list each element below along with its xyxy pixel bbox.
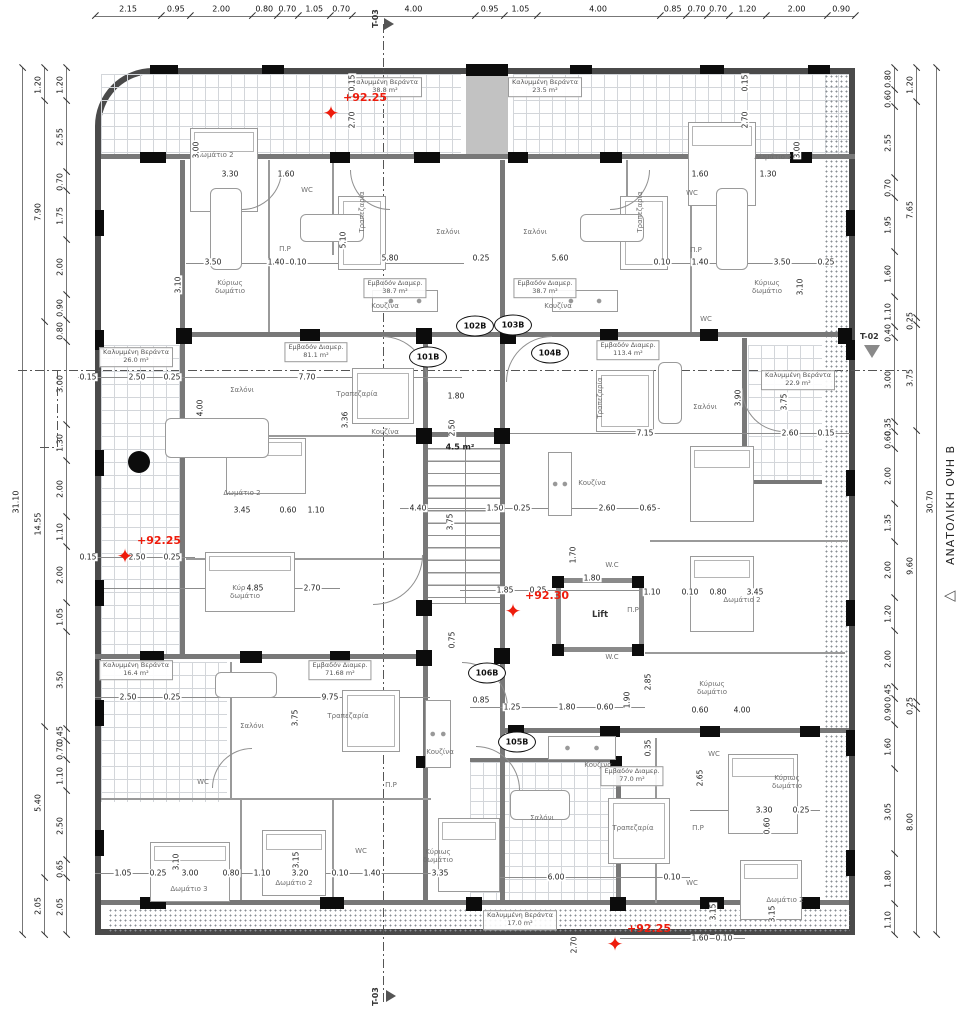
room-label: Κουζίνα: [426, 748, 454, 756]
dim-chain-right-total: 30.70: [926, 68, 940, 935]
column-block: [414, 152, 440, 163]
dimension-label: 3.10: [174, 276, 182, 295]
bed-pillow: [266, 834, 322, 850]
room-label: Π.Ρ: [690, 246, 702, 254]
dimension-label: 4.85: [246, 584, 265, 592]
dim-chain-value: 2.05: [34, 898, 43, 916]
dim-chain-value: 0.70: [332, 5, 350, 14]
veranda-tile-area: [101, 345, 181, 657]
column-block: [570, 65, 592, 74]
dim-chain-value: 0.70: [688, 5, 706, 14]
dimension-label: 2.70: [348, 111, 356, 130]
column-block: [846, 730, 855, 756]
dim-chain-value: 0.90: [56, 299, 65, 317]
column-block: [466, 64, 508, 76]
column-block: [846, 470, 855, 496]
dimension-label: 0.15: [79, 373, 98, 381]
dimension-label: 5.60: [551, 254, 570, 262]
dim-chain-value: 0.95: [167, 5, 185, 14]
wall-segment: [423, 338, 428, 905]
room-label: Δωμάτιο 3: [170, 885, 207, 893]
room-label: Π.Ρ: [279, 245, 291, 253]
room-label: Σαλόνι: [436, 228, 460, 236]
dim-chain-value: 2.15: [119, 5, 137, 14]
area-label: Καλυμμένη Βεράντα17.0 m²: [483, 910, 557, 930]
dimension-label: 1.40: [267, 258, 286, 266]
room-label: Σαλόνι: [530, 814, 554, 822]
bed-pillow: [154, 846, 226, 861]
column-block: [95, 580, 104, 606]
dimension-label: 0.80: [709, 588, 728, 596]
dimension-label: 6.00: [547, 873, 566, 881]
dim-chain-value: 2.00: [884, 650, 893, 668]
dim-chain-value: 1.60: [884, 738, 893, 756]
bed-pillow: [694, 560, 750, 578]
bed-pillow: [194, 132, 254, 152]
room-label: Δωμάτιο 2: [275, 879, 312, 887]
dim-chain-value: 4.00: [405, 5, 423, 14]
column-block: [600, 152, 622, 163]
wall-segment: [505, 728, 849, 733]
dim-tick: [852, 12, 859, 19]
dimension-label: 3.45: [233, 506, 252, 514]
unit-tag: 101B: [409, 347, 447, 368]
dimension-label: 0.10: [331, 869, 350, 877]
section-marker-t03-bottom: T-03: [371, 987, 380, 1006]
dimension-label: 0.25: [792, 806, 811, 814]
dim-chain-value: 3.05: [884, 803, 893, 821]
wall-segment: [500, 160, 505, 905]
area-label-value: 23.5 m²: [512, 87, 578, 95]
dimension-label: 3.30: [221, 170, 240, 178]
column-block: [700, 329, 718, 341]
area-label-value: 113.4 m²: [600, 350, 655, 358]
dimension-label: 2.70: [303, 584, 322, 592]
column-block: [700, 726, 720, 737]
elevation-star-icon: ✦: [117, 546, 134, 566]
dimension-label: 3.75: [780, 393, 788, 412]
area-label: Καλυμμένη Βεράντα23.5 m²: [508, 77, 582, 97]
dimension-label: 3.20: [291, 869, 310, 877]
area-label: Εμβαδόν Διαμερ.38.7 m²: [513, 278, 576, 298]
dim-chain-value: 0.70: [709, 5, 727, 14]
dimension-label: 0.15: [741, 74, 749, 93]
dimension-label: 0.10: [681, 588, 700, 596]
dim-chain-value: 0.45: [884, 684, 893, 702]
sofa-icon: [300, 214, 364, 242]
column-block: [320, 897, 344, 909]
column-block: [846, 210, 855, 236]
elevation-label: +92.25: [137, 534, 181, 547]
dimension-label: 0.10: [289, 258, 308, 266]
dim-chain-value: 0.85: [664, 5, 682, 14]
hatch-band: [108, 908, 850, 932]
unit-tag: 106B: [468, 663, 506, 684]
dim-chain-line: [22, 68, 23, 935]
dim-chain-value: 2.55: [56, 128, 65, 146]
bed-pillow: [744, 864, 798, 879]
room-label: Τραπεζαρία: [327, 712, 368, 720]
column-block: [846, 340, 855, 360]
dim-chain-right-inner: 0.800.602.550.701.951.601.100.403.000.35…: [884, 68, 898, 935]
column-block: [300, 329, 320, 341]
dimension-label: 0.15: [79, 553, 98, 561]
dimension-label: 3.15: [709, 903, 717, 922]
room-label: Π.Ρ: [385, 781, 397, 789]
dimension-label: 1.10: [643, 588, 662, 596]
room-label: Σαλόνι: [230, 386, 254, 394]
dimension-label: 3.75: [291, 709, 299, 728]
dim-chain-value: 1.20: [34, 76, 43, 94]
dim-chain-value: 0.90: [832, 5, 850, 14]
dim-chain-value: 7.65: [906, 201, 915, 219]
area-label: Καλυμμένη Βεράντα22.9 m²: [761, 370, 835, 390]
elevation-label: +92.30: [525, 589, 569, 602]
dim-chain-value: 0.70: [278, 5, 296, 14]
dim-chain-value: 2.00: [884, 468, 893, 486]
dimension-label: 2.50: [448, 419, 456, 438]
column-block: [95, 450, 104, 476]
dimension-label: 2.50: [128, 373, 147, 381]
room-label: WC: [355, 847, 367, 855]
dimension-label: 0.60: [763, 817, 771, 836]
dimension-label: 0.60: [279, 506, 298, 514]
dim-chain-left-total: 31.10: [12, 68, 26, 935]
bed-pillow: [694, 450, 750, 468]
dimension-label: 1.05: [114, 869, 133, 877]
column-block: [95, 210, 104, 236]
room-label: Δωμάτιο 2: [723, 596, 760, 604]
column-block: [846, 600, 855, 626]
dimension-label: 0.15: [348, 74, 356, 93]
room-label: Τραπεζαρία: [636, 191, 644, 232]
column-block: [416, 328, 432, 344]
column-block: [508, 152, 528, 163]
dimension-label: 0.25: [149, 869, 168, 877]
dining-table-icon: [596, 370, 654, 432]
dimension-label: 3.35: [431, 869, 450, 877]
room-label: Σαλόνι: [523, 228, 547, 236]
dimension-label: 1.90: [623, 691, 631, 710]
dim-chain-value: 9.60: [906, 558, 915, 576]
unit-tag: 104B: [531, 343, 569, 364]
section-arrow-t03-bottom: [386, 990, 396, 1002]
area-label: Εμβαδόν Διαμερ.77.0 m²: [600, 766, 663, 786]
dimension-label: 2.70: [570, 936, 578, 955]
dim-chain-value: 30.70: [926, 490, 935, 513]
dim-chain-value: 3.50: [56, 671, 65, 689]
dim-chain-value: 0.45: [56, 726, 65, 744]
elevation-triangle-icon: ◁: [944, 586, 956, 604]
room-label: Π.Ρ: [692, 824, 704, 832]
room-label: Δωμάτιο 2: [754, 153, 791, 161]
area-label-value: 38.7 m²: [517, 288, 572, 296]
dimension-label: 0.25: [163, 553, 182, 561]
dimension-label: 7.70: [298, 373, 317, 381]
room-label: Τραπεζαρία: [612, 824, 653, 832]
dimension-label: 2.50: [119, 693, 138, 701]
dim-chain-value: 1.20: [56, 76, 65, 94]
column-block: [808, 65, 830, 74]
room-label: W.C: [605, 561, 618, 569]
dim-chain-value: 2.55: [884, 134, 893, 152]
partition-wall: [332, 800, 334, 900]
dim-chain-value: 1.05: [511, 5, 529, 14]
dimension-label: 1.10: [253, 869, 272, 877]
unit-tag: 103B: [494, 315, 532, 336]
elevation-star-icon: ✦: [607, 934, 624, 954]
room-label: WC: [301, 186, 313, 194]
bed-icon: [690, 446, 754, 522]
dim-chain-line: [44, 68, 45, 935]
dimension-label: 1.25: [503, 703, 522, 711]
dimension-label: 3.10: [172, 853, 180, 872]
dimension-label: 0.10: [715, 934, 734, 942]
dimension-label: 0.80: [222, 869, 241, 877]
column-block: [416, 600, 432, 616]
area-label: Εμβαδόν Διαμερ.81.1 m²: [284, 342, 347, 362]
room-label: Δωμάτιο 2: [223, 489, 260, 497]
dimension-label: 0.15: [817, 429, 836, 437]
room-label: W.C: [605, 653, 618, 661]
column-block: [416, 650, 432, 666]
dim-chain-value: 1.10: [884, 303, 893, 321]
wall-segment: [742, 480, 822, 484]
core-shaft: [466, 68, 508, 158]
sofa-icon: [580, 214, 644, 242]
column-block: [552, 644, 564, 656]
column-block: [552, 576, 564, 588]
room-label: Κύριως δωμάτιο: [415, 848, 461, 864]
dimension-label: 1.70: [569, 546, 577, 565]
partition-wall: [645, 652, 845, 654]
dimension-label: 0.25: [817, 258, 836, 266]
dim-chain-value: 2.00: [884, 561, 893, 579]
column-circle: [128, 451, 150, 473]
room-label: Τραπεζαρία: [358, 191, 366, 232]
dim-chain-value: 1.10: [56, 523, 65, 541]
room-label: Κύριως δωμάτιο: [764, 774, 810, 790]
dim-chain-value: 0.95: [481, 5, 499, 14]
dimension-label: 4.00: [733, 706, 752, 714]
dim-chain-value: 5.40: [34, 794, 43, 812]
dimension-label: 1.60: [691, 170, 710, 178]
wall-segment: [180, 160, 185, 659]
area-label-value: 16.4 m²: [103, 670, 169, 678]
column-block: [632, 644, 644, 656]
column-block: [176, 328, 192, 344]
axis-line-left-foot: [40, 447, 57, 448]
dimension-label: 3.15: [292, 851, 300, 870]
dim-chain-value: 1.10: [56, 767, 65, 785]
dimension-line: [470, 877, 690, 878]
dimension-label: 1.50: [486, 504, 505, 512]
sofa-icon: [716, 188, 748, 270]
dim-chain-value: 2.00: [788, 5, 806, 14]
area-label: Καλυμμένη Βεράντα26.0 m²: [99, 347, 173, 367]
partition-wall: [101, 798, 431, 800]
kitchen-counter-icon: [425, 700, 451, 768]
column-block: [494, 648, 510, 664]
area-label-value: 26.0 m²: [103, 357, 169, 365]
room-label: Κύριως δωμάτιο: [689, 680, 735, 696]
sofa-icon: [165, 418, 269, 458]
elevation-title: ΑΝΑΤΟΛΙΚΗ ΟΨΗ Β: [944, 425, 964, 585]
dim-chain-value: 0.90: [884, 703, 893, 721]
column-block: [240, 651, 262, 663]
dimension-label: 1.80: [447, 392, 466, 400]
dim-chain-value: 1.75: [56, 207, 65, 225]
dim-chain-value: 1.95: [884, 216, 893, 234]
kitchen-counter-icon: [548, 736, 616, 760]
dim-chain-value: 1.20: [738, 5, 756, 14]
dim-chain-value: 2.00: [56, 259, 65, 277]
dim-chain-value: 2.00: [56, 566, 65, 584]
area-label: Εμβαδόν Διαμερ.38.7 m²: [363, 278, 426, 298]
dimension-label: 3.75: [446, 513, 454, 532]
dimension-label: 0.10: [663, 873, 682, 881]
column-block: [140, 152, 166, 163]
dim-chain-value: 7.90: [34, 203, 43, 221]
sofa-icon: [215, 672, 277, 698]
room-label: WC: [686, 189, 698, 197]
dim-chain-value: 1.05: [56, 608, 65, 626]
dimension-label: 0.25: [472, 254, 491, 262]
dim-chain-line: [936, 68, 937, 935]
area-label: Εμβαδόν Διαμερ.113.4 m²: [596, 340, 659, 360]
room-label: Κύριως δωμάτιο: [207, 279, 253, 295]
bed-pillow: [442, 822, 496, 840]
staircase: [426, 436, 504, 604]
dim-chain-value: 1.35: [884, 514, 893, 532]
column-block: [330, 152, 350, 163]
elevation-label: +92.25: [627, 922, 671, 935]
bed-icon: [205, 552, 295, 612]
dim-chain-left-inner: 1.202.550.701.752.000.900.803.001.302.00…: [56, 68, 70, 935]
section-marker-t02: T-02: [860, 332, 879, 341]
area-label-value: 17.0 m²: [487, 920, 553, 928]
room-label: Κουζίνα: [544, 302, 572, 310]
room-label: Σαλόνι: [693, 403, 717, 411]
room-label: Κουζίνα: [584, 761, 612, 769]
dim-chain-value: 1.10: [884, 911, 893, 929]
column-block: [700, 65, 724, 74]
dim-chain-value: 1.05: [305, 5, 323, 14]
dim-chain-value: 1.20: [906, 76, 915, 94]
room-label: 4.5 m²: [446, 442, 475, 451]
column-block: [416, 428, 432, 444]
dining-table-icon: [342, 690, 400, 752]
dimension-label: 3.10: [796, 278, 804, 297]
dimension-label: 3.00: [181, 869, 200, 877]
column-block: [846, 850, 855, 876]
room-label: Π.Ρ: [627, 606, 639, 614]
dimension-label: 2.60: [781, 429, 800, 437]
dimension-label: 3.45: [746, 588, 765, 596]
dimension-label: 0.25: [513, 504, 532, 512]
partition-wall: [240, 800, 242, 900]
bed-pillow: [209, 556, 291, 571]
dimension-label: 0.75: [448, 631, 456, 650]
room-label: WC: [700, 315, 712, 323]
dim-chain-value: 1.60: [884, 265, 893, 283]
elevation-star-icon: ✦: [323, 103, 340, 123]
lift-label: Lift: [592, 610, 608, 620]
room-label: Κουζίνα: [371, 428, 399, 436]
dimension-label: 9.75: [321, 693, 340, 701]
dimension-label: 0.35: [644, 739, 652, 758]
dimension-label: 1.80: [583, 574, 602, 582]
elevation-star-icon: ✦: [505, 601, 522, 621]
unit-tag: 105B: [498, 732, 536, 753]
dimension-label: 5.80: [381, 254, 400, 262]
column-block: [262, 65, 284, 74]
dim-chain-value: 8.00: [906, 813, 915, 831]
room-label: Κουζίνα: [578, 479, 606, 487]
area-label-value: 77.0 m²: [604, 776, 659, 784]
area-label: Καλυμμένη Βεράντα16.4 m²: [99, 660, 173, 680]
room-label: WC: [686, 879, 698, 887]
column-block: [800, 726, 820, 737]
area-label-value: 71.68 m²: [312, 670, 367, 678]
section-arrow-t02: [864, 345, 880, 358]
dim-chain-value: 2.00: [212, 5, 230, 14]
room-label: Τραπεζαρία: [596, 377, 604, 418]
dim-chain-value: 1.20: [884, 605, 893, 623]
dim-chain-right-outer: 1.207.650.253.759.600.258.00: [906, 68, 920, 935]
area-label-value: 38.7 m²: [367, 288, 422, 296]
dim-chain-top: 2.150.952.000.800.701.050.704.000.951.05…: [95, 4, 855, 20]
dim-chain-value: 3.75: [906, 369, 915, 387]
section-arrow-t03-top: [384, 18, 394, 30]
dimension-label: 0.10: [653, 258, 672, 266]
dim-chain-value: 2.00: [56, 480, 65, 498]
dim-chain-value: 0.80: [255, 5, 273, 14]
stair-divider: [465, 437, 466, 603]
axis-line-left: [57, 370, 58, 447]
dimension-label: 0.65: [639, 504, 658, 512]
dim-chain-value: 2.05: [56, 898, 65, 916]
room-label: Δωμάτιο 2: [766, 896, 803, 904]
dimension-label: 0.25: [163, 373, 182, 381]
dimension-label: 1.10: [307, 506, 326, 514]
dimension-label: 3.50: [773, 258, 792, 266]
area-label: Εμβαδόν Διαμερ.71.68 m²: [308, 660, 371, 680]
dimension-label: 2.85: [644, 673, 652, 692]
column-block: [95, 830, 104, 856]
column-block: [600, 329, 618, 341]
column-block: [610, 897, 626, 911]
dimension-label: 3.90: [734, 389, 742, 408]
column-block: [466, 897, 482, 911]
room-label: Κουζίνα: [371, 302, 399, 310]
partition-wall: [650, 540, 848, 542]
dimension-label: 7.15: [636, 429, 655, 437]
dim-chain-value: 2.50: [56, 817, 65, 835]
elevation-label: +92.25: [343, 91, 387, 104]
dimension-label: 3.00: [192, 141, 200, 160]
dim-chain-value: 14.55: [34, 513, 43, 536]
kitchen-counter-icon: [548, 452, 572, 516]
dimension-label: 1.60: [277, 170, 296, 178]
dim-chain-value: 1.80: [884, 870, 893, 888]
column-block: [632, 576, 644, 588]
dimension-label: 0.60: [596, 703, 615, 711]
dimension-label: 4.00: [196, 399, 204, 418]
room-label: Κύριως δωμάτιο: [744, 279, 790, 295]
dimension-label: 3.30: [755, 806, 774, 814]
room-label: Δωμάτιο 2: [196, 151, 233, 159]
